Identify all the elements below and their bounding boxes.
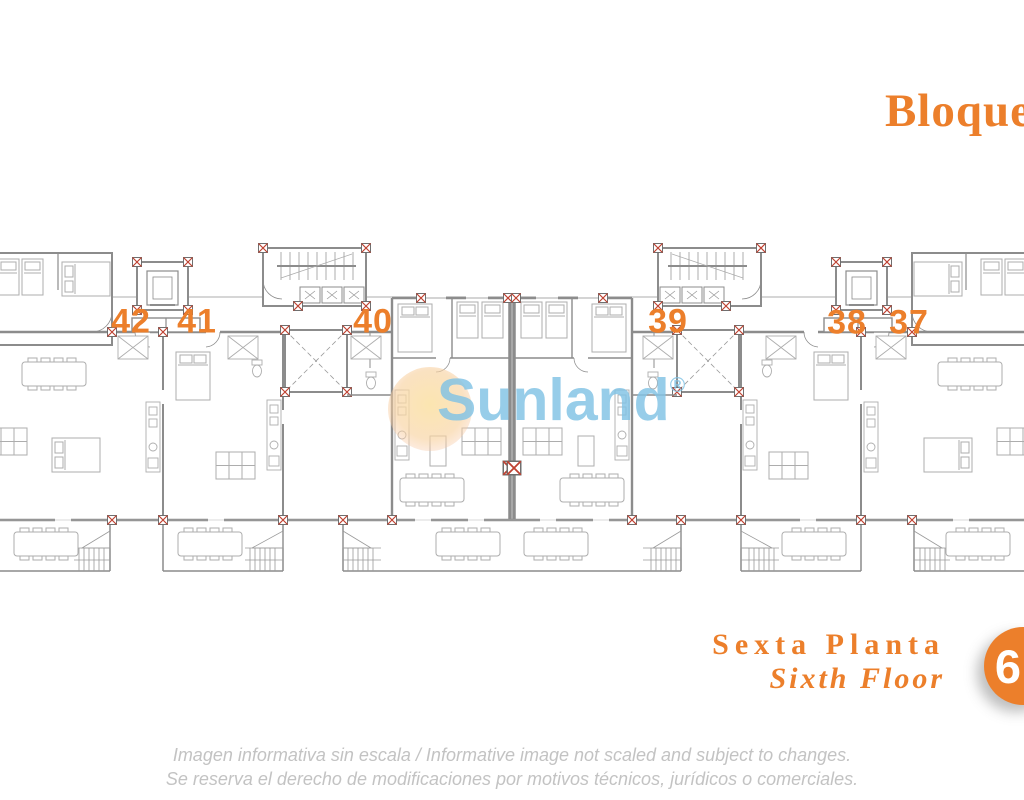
plan-left-half xyxy=(0,244,517,572)
floor-badge: 6 xyxy=(984,627,1024,705)
floorplan-drawing xyxy=(0,240,1024,580)
floor-label-spanish: Sexta Planta xyxy=(712,628,945,662)
block-title: Bloque xyxy=(885,84,1024,138)
unit-number-39: 39 xyxy=(648,303,688,342)
unit-number-37: 37 xyxy=(889,304,929,343)
floorplan-page: Bloque xyxy=(0,0,1024,800)
disclaimer-line-1: Imagen informativa sin escala / Informat… xyxy=(0,743,1024,767)
disclaimer: Imagen informativa sin escala / Informat… xyxy=(0,743,1024,791)
unit-number-38: 38 xyxy=(827,304,867,343)
floor-label: Sexta Planta Sixth Floor xyxy=(712,628,945,696)
floor-badge-number: 6 xyxy=(995,639,1021,694)
unit-number-41: 41 xyxy=(177,303,217,342)
disclaimer-line-2: Se reserva el derecho de modificaciones … xyxy=(0,767,1024,791)
unit-number-42: 42 xyxy=(111,303,151,342)
plan-right-half xyxy=(507,244,1024,572)
floor-label-english: Sixth Floor xyxy=(712,662,945,696)
unit-number-40: 40 xyxy=(353,303,393,342)
